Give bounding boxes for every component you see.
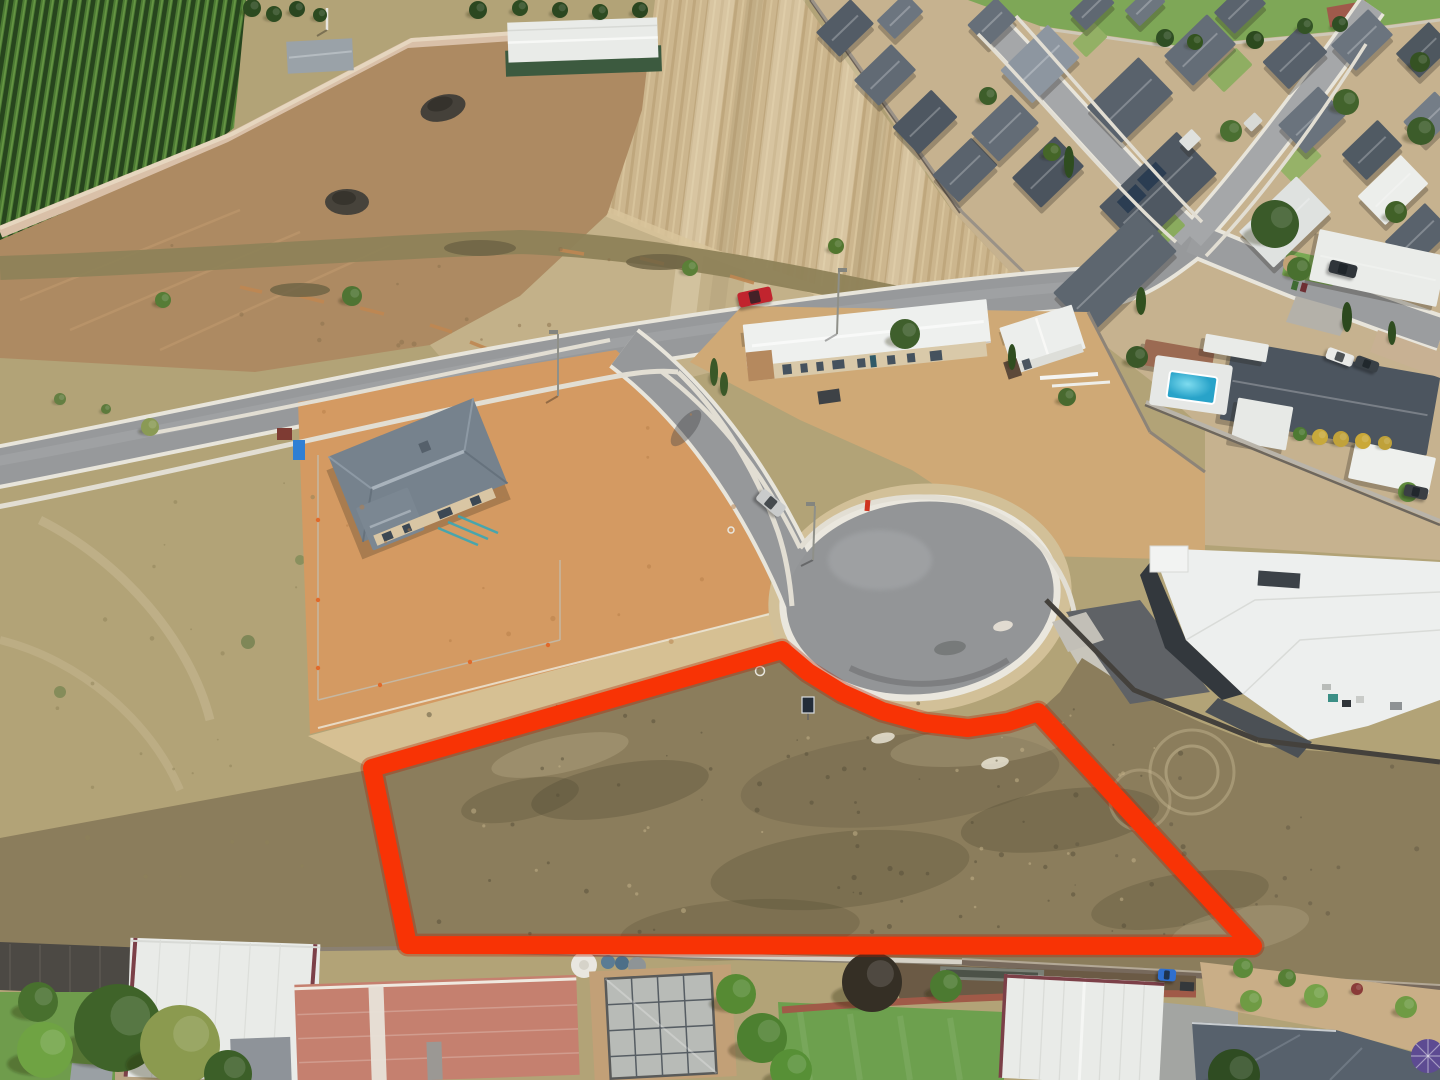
- swimming-pool: [1166, 371, 1217, 404]
- greenhouse: [589, 964, 737, 1080]
- white-shed-2: [999, 974, 1164, 1080]
- aerial-photo: [0, 0, 1440, 1080]
- hydrant-marker: [864, 500, 870, 511]
- roof-parapet: [1150, 546, 1188, 572]
- blue-mower: [1155, 968, 1176, 984]
- site-bin: [277, 428, 292, 440]
- aerial-photo-svg: [0, 0, 1440, 1080]
- portaloo: [293, 440, 305, 460]
- skylight: [1257, 571, 1300, 589]
- dark-bin: [1180, 982, 1194, 992]
